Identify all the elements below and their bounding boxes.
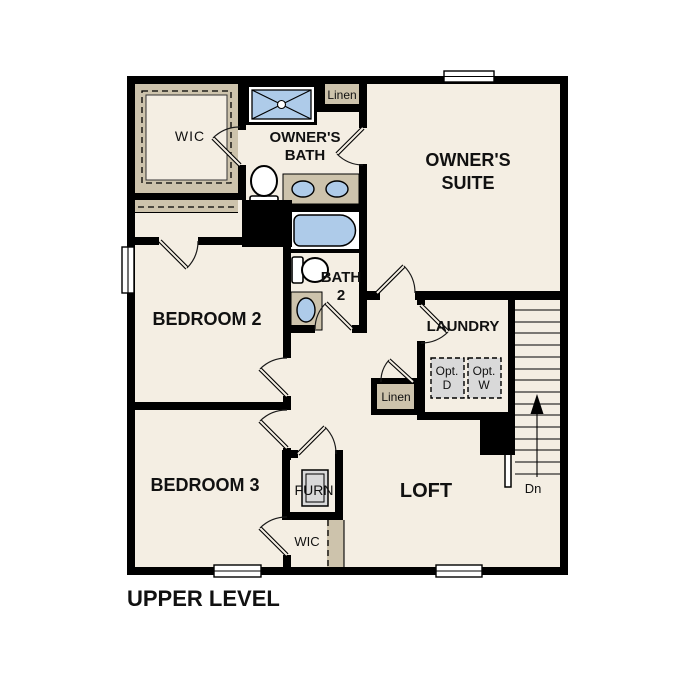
sink-icon [326, 181, 348, 197]
label-wic-lower: WIC [294, 534, 319, 549]
label-laundry: LAUNDRY [427, 318, 500, 335]
bath2-tub [291, 212, 359, 249]
window-bedroom3 [214, 565, 261, 577]
shower-fixture [246, 84, 317, 125]
wic-lower-strip [327, 520, 344, 567]
label-bath2-line2: 2 [337, 287, 345, 304]
floorplan-svg: WIC OWNER'S BATH Linen OWNER'S SUITE BED… [0, 0, 687, 687]
label-opt-dryer-line1: Opt. [436, 364, 459, 378]
bath2-vanity [291, 292, 322, 330]
stair-railing [505, 453, 511, 487]
label-stairs-down: Dn [525, 481, 542, 496]
owners-bath-double-vanity [283, 174, 359, 204]
label-linen-upper: Linen [327, 88, 356, 102]
plan-title: UPPER LEVEL [127, 586, 280, 611]
label-loft: LOFT [400, 480, 452, 502]
label-bedroom3: BEDROOM 3 [150, 475, 259, 495]
sink-icon [297, 298, 315, 322]
label-owners-bath-line2: BATH [285, 147, 326, 164]
shower-drain-icon [278, 101, 286, 109]
window-loft [436, 565, 482, 577]
window-owners-suite [444, 71, 494, 82]
label-owners-bath-line1: OWNER'S [269, 129, 340, 146]
sink-icon [292, 181, 314, 197]
label-opt-washer-line1: Opt. [473, 364, 496, 378]
label-bath2-line1: BATH [321, 269, 362, 286]
floorplan-upper-level: WIC OWNER'S BATH Linen OWNER'S SUITE BED… [0, 0, 687, 687]
label-owners-suite-line1: OWNER'S [425, 150, 510, 170]
label-owners-suite-line2: SUITE [441, 173, 494, 193]
window-bedroom2 [122, 247, 134, 293]
label-wic-upper: WIC [175, 128, 205, 144]
label-bedroom2: BEDROOM 2 [152, 309, 261, 329]
label-linen-mid: Linen [381, 390, 410, 404]
bedroom2-closet [135, 200, 238, 213]
label-furnace: FURN [295, 482, 334, 498]
label-opt-dryer-line2: D [443, 378, 452, 392]
label-opt-washer-line2: W [478, 378, 490, 392]
